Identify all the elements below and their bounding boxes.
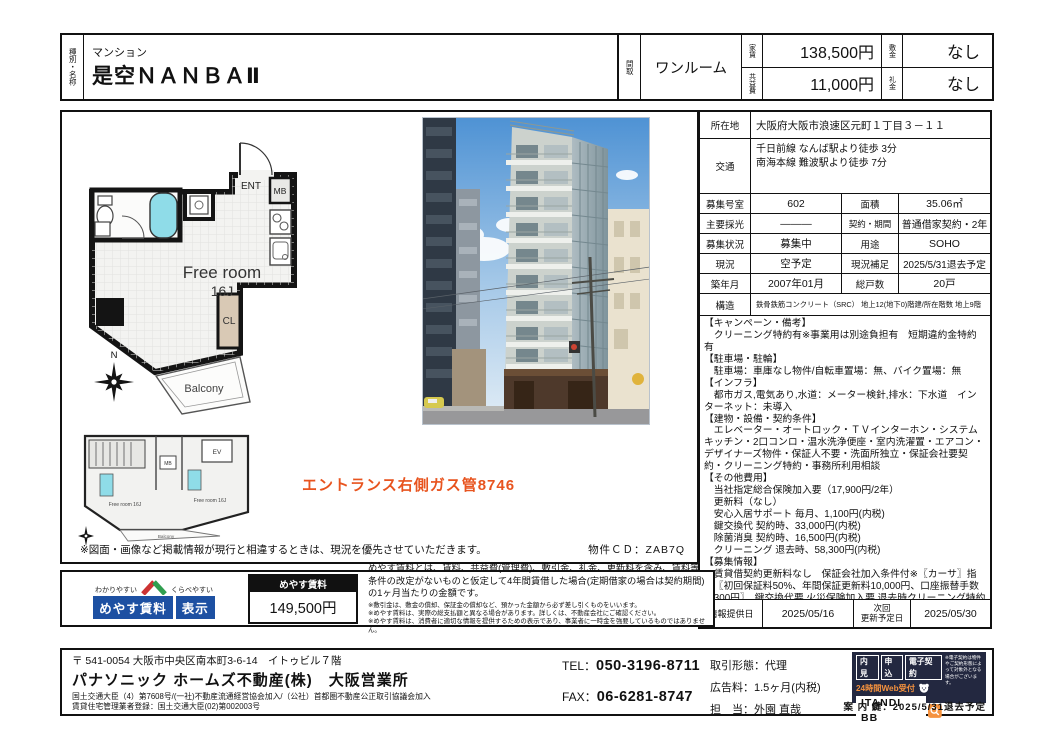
tel-label: TEL： — [562, 659, 596, 673]
remark-line: 【インフラ】 — [704, 378, 986, 390]
row-label: 主要採光 — [700, 214, 751, 233]
row-label: 募集状況 — [700, 234, 751, 253]
access-line1: 千日前線 なんば駅より徒歩 3分 — [756, 143, 990, 157]
title-left-box: 種別・名称 マンション 是空ＮＡＮＢＡⅡ — [60, 33, 621, 101]
row-value: 602 — [751, 194, 841, 213]
next-update-label: 次回 更新予定日 — [853, 600, 911, 627]
agency-name: パナソニック ホームズ不動産(株) 大阪営業所 — [72, 669, 552, 690]
agency-block: 〒 541-0054 大阪市中央区南本町3-6-14 イトゥビル７階 パナソニッ… — [72, 653, 552, 712]
structure-value: 鉄骨鉄筋コンクリート（SRC） 地上12(地下0)階建/所在階数 地上9階 — [751, 294, 990, 315]
itandi-panel: 内見 申込 電子契約 24時間Web受付 ITANDI BB — [852, 652, 986, 703]
row-label: 現況 — [700, 254, 751, 273]
remark-line: クリーニング 退去時、58,300円(内税) — [704, 545, 986, 557]
layout-vertical-label: 間取 — [619, 35, 641, 99]
compass-center — [111, 379, 116, 384]
meyasu-description: めやす賃料とは、賃料、共益費(管理費)、敷引金、礼金、更新料を含み、賃料等条件の… — [368, 562, 705, 635]
small-bath-left — [100, 474, 113, 496]
agent-label: 担 当： — [710, 704, 754, 716]
key-money-label: 礼金 — [889, 76, 896, 90]
type-name-vertical-label: 種別・名称 — [62, 35, 84, 99]
license-line2: 賃貸住宅管理業者登録：国土交通大臣(02)第002003号 — [72, 702, 552, 712]
structure-row: 構造 鉄骨鉄筋コンクリート（SRC） 地上12(地下0)階建/所在階数 地上9階 — [700, 294, 990, 316]
agent-line: 担 当：外園 直哉 — [710, 701, 860, 717]
photo-note: エントランス右側ガス管8746 — [302, 474, 515, 495]
fax-label: FAX： — [562, 690, 597, 704]
storefront-door — [568, 381, 594, 409]
itandi-web-row: 24時間Web受付 — [856, 682, 942, 694]
fax-line: FAX：06-6281-8747 — [562, 688, 700, 705]
small-compass-center — [85, 535, 88, 538]
remarks-block: 【キャンペーン・備考】 クリーニング特約有※事業用は別途負担有 短期違約金特約有… — [700, 316, 990, 600]
detail-row: 募集号室 602 面積 35.06㎡ — [700, 194, 990, 214]
agency-licenses: 国土交通大臣（4）第7608号/(一社)不動産流通経営協会加入/（公社）首都圏不… — [72, 692, 552, 712]
remark-line: 賃貸借契約更新料なし 保証会社加入条件付※〖カーサ〗指定〖初回保証料50%、年間… — [704, 569, 986, 600]
bath-sink-icon — [95, 222, 110, 236]
remark-line: 【その他費用】 — [704, 473, 986, 485]
bear-icon — [918, 683, 930, 693]
access-label: 交通 — [700, 139, 751, 193]
roof-icon — [140, 579, 168, 595]
row-value: 20戸 — [899, 274, 990, 293]
detail-row: 現況 空予定 現況補足 2025/5/31退去予定 — [700, 254, 990, 274]
deal-type-label: 取引形態： — [710, 660, 765, 672]
remark-line: 安心入居サポート 毎月、1,100円(内税) — [704, 509, 986, 521]
footer: 〒 541-0054 大阪市中央区南本町3-6-14 イトゥビル７階 パナソニッ… — [60, 648, 994, 716]
rent-label: 家賃 — [749, 44, 756, 58]
remark-line: 更新料（なし） — [704, 497, 986, 509]
car-window — [428, 399, 437, 403]
itandi-main: 内見 申込 電子契約 24時間Web受付 ITANDI BB — [856, 655, 942, 700]
guide-key-line: 案 内 鍵：2025/5/31退去予定 — [843, 699, 986, 713]
property-cd: 物件ＣＤ：ZAB7Q — [588, 542, 685, 557]
row-value: 2007年01月 — [751, 274, 841, 293]
row-label: 契約・期間 — [841, 214, 899, 233]
meyasu-logo-main: めやす賃料 — [93, 596, 173, 619]
floor-plan: MB ENT CL Free room 16J Balcony N — [72, 130, 407, 422]
storefront-door — [514, 381, 534, 409]
access-row: 交通 千日前線 なんば駅より徒歩 3分 南海本線 難波駅より徒歩 7分 — [700, 139, 990, 194]
small-mb-label: MB — [164, 461, 172, 467]
ad-fee-value: 1.5ヶ月(内税) — [754, 682, 821, 694]
ad-fee-label: 広告料： — [710, 682, 754, 694]
meyasu-price-value: 149,500円 — [250, 592, 356, 622]
remark-line: 都市ガス,電気あり,水道：メーター検針,排水：下水道 インターネット：未導入 — [704, 390, 986, 414]
detail-row: 築年月 2007年01月 総戸数 20戸 — [700, 274, 990, 294]
fee-label: 共益費 — [749, 73, 756, 94]
row-value: 募集中 — [751, 234, 841, 253]
round-sign — [632, 373, 644, 385]
small-floor-plan: EV MB Free room 16J Free room 16J Balcon… — [70, 420, 270, 546]
fee-value: 11,000円 — [763, 68, 881, 100]
meyasu-logo-sub: 表示 — [176, 596, 215, 619]
plan-photo-panel: MB ENT CL Free room 16J Balcony N — [60, 110, 699, 564]
cl-label: CL — [223, 316, 236, 327]
deal-type-line: 取引形態：代理 — [710, 657, 860, 673]
deal-block: 取引形態：代理 広告料：1.5ヶ月(内税) 担 当：外園 直哉 — [710, 657, 860, 723]
detail-row: 主要採光 ――― 契約・期間 普通借家契約・2年 — [700, 214, 990, 234]
property-name: 是空ＮＡＮＢＡⅡ — [92, 60, 611, 90]
entry-opening — [238, 170, 274, 180]
remark-line: クリーニング特約有※事業用は別途負担有 短期違約金特約有 — [704, 330, 986, 354]
plan-disclaimer: ※図面・画像など掲載情報が現行と相違するときは、現況を優先させていただきます。 — [80, 542, 487, 557]
row-label: 面積 — [841, 194, 899, 213]
detail-table: 所在地 大阪府大阪市浪速区元町１丁目３－１１ 交通 千日前線 なんば駅より徒歩 … — [698, 110, 992, 629]
compass-n-label: N — [111, 350, 118, 361]
location-label: 所在地 — [700, 112, 751, 138]
small-room2-label: Free room 16J — [194, 498, 227, 504]
remark-line: エレベーター・オートロック・ＴＶインターホン・システムキッチン・2口コンロ・温水… — [704, 425, 986, 473]
deposit-keymoney-labels: 敷金 礼金 — [881, 35, 902, 99]
row-label: 現況補足 — [841, 254, 899, 273]
row-value: ――― — [751, 214, 841, 233]
meyasu-notes: ※敷引金は、敷金の償却、保証金の償却など、預かった金額から必ず差し引くものをいい… — [368, 602, 705, 635]
title-right-box: 間取 ワンルーム 家賃 共益費 138,500円 11,000円 敷金 礼金 な… — [617, 33, 994, 101]
tel-line: TEL：050-3196-8711 — [562, 657, 700, 674]
remark-line: 当社指定総合保険加入要（17,900円/2年） — [704, 485, 986, 497]
meyasu-box: わかりやすい くらべやすい めやす賃料 表示 めやす賃料 149,500円 めや… — [60, 570, 715, 627]
row-label: 用途 — [841, 234, 899, 253]
meyasu-description-text: めやす賃料とは、賃料、共益費(管理費)、敷引金、礼金、更新料を含み、賃料等条件の… — [368, 562, 705, 600]
license-line1: 国土交通大臣（4）第7608号/(一社)不動産流通経営協会加入/（公社）首都圏不… — [72, 692, 552, 702]
location-value: 大阪府大阪市浪速区元町１丁目３－１１ — [751, 112, 990, 138]
structure-label: 構造 — [700, 294, 751, 315]
mb-label: MB — [274, 186, 287, 196]
remark-line: 【募集情報】 — [704, 557, 986, 569]
remark-line: 【建物・設備・契約条件】 — [704, 414, 986, 426]
meyasu-taglines: わかりやすい くらべやすい — [70, 579, 238, 595]
meyasu-price-box: めやす賃料 149,500円 — [248, 574, 358, 624]
rent-fee-labels: 家賃 共益費 — [741, 35, 762, 99]
info-date-row: 情報提供日 2025/05/16 次回 更新予定日 2025/05/30 — [700, 600, 990, 627]
meyasu-price-label: めやす賃料 — [250, 576, 356, 592]
row-value: 35.06㎡ — [899, 194, 990, 213]
meyasu-logo-boxes: めやす賃料 表示 — [70, 596, 238, 619]
street — [422, 409, 650, 425]
deposit-keymoney-values: なし なし — [902, 35, 992, 99]
remark-line: 除菌消臭 契約時、16,500円(内税) — [704, 533, 986, 545]
key-money-value: なし — [903, 68, 992, 100]
meyasu-tagline-left: わかりやすい — [95, 585, 137, 595]
rent-value: 138,500円 — [763, 35, 881, 68]
row-value: 普通借家契約・2年 — [899, 214, 990, 233]
building-photo — [422, 117, 650, 425]
row-value: 空予定 — [751, 254, 841, 273]
access-value: 千日前線 なんば駅より徒歩 3分 南海本線 難波駅より徒歩 7分 — [751, 139, 990, 193]
row-value: 2025/5/31退去予定 — [899, 254, 990, 273]
row-value: SOHO — [899, 234, 990, 253]
location-row: 所在地 大阪府大阪市浪速区元町１丁目３－１１ — [700, 112, 990, 139]
access-line2: 南海本線 難波駅より徒歩 7分 — [756, 157, 990, 171]
balcony-label: Balcony — [184, 383, 224, 395]
row-label: 築年月 — [700, 274, 751, 293]
ad-fee-line: 広告料：1.5ヶ月(内税) — [710, 679, 860, 695]
tel-number: 050-3196-8711 — [596, 658, 700, 674]
small-balcony-label: Balcony — [158, 534, 175, 539]
pillar — [96, 298, 124, 326]
agency-address: 〒 541-0054 大阪市中央区南本町3-6-14 イトゥビル７階 — [72, 653, 552, 668]
deposit-value: なし — [903, 35, 992, 68]
bathtub-icon — [150, 193, 177, 238]
itandi-note: ※電子契約は物件やご契約形態によって対象外となる場合がございます。 — [945, 655, 982, 700]
remark-line: 【駐車場・駐輪】 — [704, 354, 986, 366]
stove-icon — [270, 210, 291, 234]
remark-line: 【キャンペーン・備考】 — [704, 318, 986, 330]
itandi-tab-moushikomi: 申込 — [881, 655, 904, 680]
meyasu-tagline-right: くらべやすい — [171, 585, 213, 595]
layout-value: ワンルーム — [641, 35, 741, 99]
row-label: 募集号室 — [700, 194, 751, 213]
agent-value: 外園 直哉 — [754, 704, 801, 716]
small-bath-right — [188, 470, 201, 490]
toilet-tank — [98, 196, 112, 205]
deal-type-value: 代理 — [765, 660, 787, 672]
itandi-tab-naiken: 内見 — [856, 655, 879, 680]
rent-fee-values: 138,500円 11,000円 — [762, 35, 881, 99]
property-type: マンション — [92, 44, 611, 60]
itandi-web-label: 24時間Web受付 — [856, 682, 915, 694]
property-title: マンション 是空ＮＡＮＢＡⅡ — [84, 35, 619, 99]
meyasu-note-line: ※敷引金は、敷金の償却、保証金の償却など、預かった金額から必ず差し引くものをいい… — [368, 602, 705, 610]
signal-light — [571, 344, 577, 350]
ev-label: EV — [213, 449, 222, 456]
contact-block: TEL：050-3196-8711 FAX：06-6281-8747 — [562, 657, 700, 705]
detail-row: 募集状況 募集中 用途 SOHO — [700, 234, 990, 254]
room-size-label: 16J — [211, 283, 234, 299]
room-label: Free room — [183, 263, 261, 282]
small-room1-label: Free room 16J — [109, 502, 142, 508]
ent-label: ENT — [241, 181, 261, 192]
row-label: 総戸数 — [841, 274, 899, 293]
info-date-value: 2025/05/16 — [763, 600, 853, 627]
itandi-tabs: 内見 申込 電子契約 — [856, 655, 942, 680]
next-update-value: 2025/05/30 — [911, 600, 990, 627]
meyasu-logo: わかりやすい くらべやすい めやす賃料 表示 — [70, 579, 238, 619]
itandi-tab-denshikeiyaku: 電子契約 — [905, 655, 942, 680]
deposit-label: 敷金 — [889, 44, 896, 58]
fax-number: 06-6281-8747 — [597, 689, 693, 705]
remark-line: 駐車場：車庫なし物件/自転車置場：無、バイク置場：無 — [704, 366, 986, 378]
remark-line: 鍵交換代 契約時、33,000円(内税) — [704, 521, 986, 533]
meyasu-note-line: ※めやす賃料は、消費者に適切な情報を提供するための表示であり、事業者に一時金を強… — [368, 618, 705, 635]
washer-icon — [190, 196, 208, 214]
